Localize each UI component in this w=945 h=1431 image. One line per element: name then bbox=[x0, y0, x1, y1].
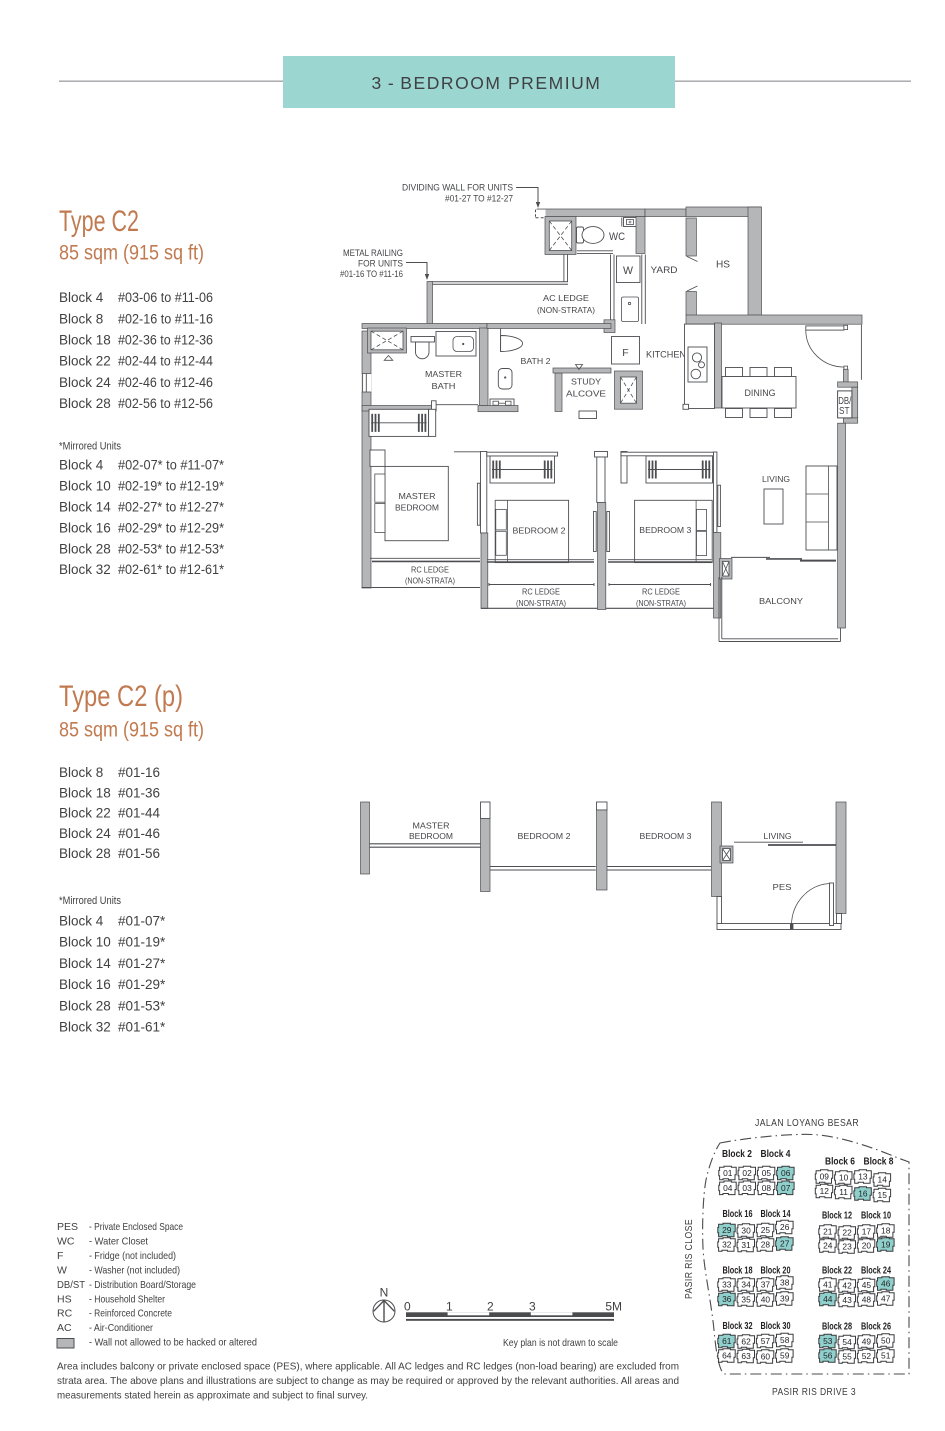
svg-text:BEDROOM: BEDROOM bbox=[409, 831, 453, 841]
svg-text:21: 21 bbox=[823, 1227, 833, 1237]
svg-text:12: 12 bbox=[820, 1186, 830, 1196]
svg-text:54: 54 bbox=[842, 1337, 852, 1347]
svg-text:40: 40 bbox=[761, 1295, 771, 1305]
svg-text:N: N bbox=[380, 1286, 389, 1300]
svg-text:Block 10: Block 10 bbox=[59, 935, 111, 950]
svg-text:BEDROOM 3: BEDROOM 3 bbox=[640, 831, 692, 841]
svg-text:- Fridge (not included): - Fridge (not included) bbox=[89, 1250, 176, 1262]
svg-text:Block 32: Block 32 bbox=[59, 562, 111, 577]
svg-text:Block 18: Block 18 bbox=[723, 1266, 753, 1277]
svg-text:Block 24: Block 24 bbox=[861, 1266, 891, 1277]
svg-text:59: 59 bbox=[780, 1351, 790, 1361]
svg-text:RC LEDGE: RC LEDGE bbox=[642, 588, 680, 597]
svg-text:03: 03 bbox=[742, 1183, 752, 1193]
svg-text:#01-36: #01-36 bbox=[118, 785, 160, 800]
svg-text:Block 10: Block 10 bbox=[861, 1211, 891, 1222]
svg-text:04: 04 bbox=[723, 1183, 733, 1193]
svg-text:Block 26: Block 26 bbox=[861, 1322, 891, 1333]
svg-text:15: 15 bbox=[878, 1190, 888, 1200]
svg-text:3 - BEDROOM PREMIUM: 3 - BEDROOM PREMIUM bbox=[372, 73, 602, 93]
svg-text:PES: PES bbox=[773, 882, 792, 892]
svg-text:11: 11 bbox=[839, 1187, 848, 1197]
svg-text:35: 35 bbox=[741, 1295, 751, 1305]
svg-text:#01-19*: #01-19* bbox=[118, 935, 166, 950]
svg-text:Block 18: Block 18 bbox=[59, 333, 111, 348]
svg-text:16: 16 bbox=[858, 1189, 868, 1199]
svg-text:64: 64 bbox=[722, 1351, 732, 1361]
svg-text:22: 22 bbox=[842, 1228, 852, 1238]
svg-text:BEDROOM 2: BEDROOM 2 bbox=[513, 526, 566, 536]
svg-text:27: 27 bbox=[780, 1239, 790, 1249]
svg-text:Block 14: Block 14 bbox=[59, 956, 111, 971]
svg-text:(NON-STRATA): (NON-STRATA) bbox=[516, 599, 566, 608]
svg-text:39: 39 bbox=[780, 1294, 790, 1304]
svg-text:48: 48 bbox=[862, 1295, 872, 1305]
svg-text:KITCHEN: KITCHEN bbox=[646, 350, 686, 360]
svg-text:#01-56: #01-56 bbox=[118, 846, 160, 861]
svg-text:43: 43 bbox=[842, 1295, 852, 1305]
svg-text:Block 22: Block 22 bbox=[59, 806, 111, 821]
svg-text:JALAN LOYANG BESAR: JALAN LOYANG BESAR bbox=[755, 1117, 859, 1129]
svg-text:Block 8: Block 8 bbox=[59, 311, 103, 326]
svg-text:Block 24: Block 24 bbox=[59, 826, 111, 841]
svg-text:47: 47 bbox=[881, 1294, 891, 1304]
svg-text:Key plan is not drawn to scale: Key plan is not drawn to scale bbox=[503, 1337, 618, 1349]
svg-text:Block 28: Block 28 bbox=[59, 541, 111, 556]
svg-text:09: 09 bbox=[820, 1172, 830, 1182]
svg-text:Block 18: Block 18 bbox=[59, 785, 111, 800]
svg-text:Block 4: Block 4 bbox=[59, 914, 104, 929]
svg-text:38: 38 bbox=[780, 1278, 790, 1288]
svg-text:DINING: DINING bbox=[745, 388, 776, 398]
svg-text:DB/ST: DB/ST bbox=[57, 1279, 86, 1291]
svg-text:0: 0 bbox=[404, 1299, 411, 1313]
svg-text:Block 6: Block 6 bbox=[825, 1157, 855, 1168]
svg-text:36: 36 bbox=[722, 1294, 732, 1304]
svg-text:51: 51 bbox=[881, 1351, 891, 1361]
svg-text:06: 06 bbox=[781, 1168, 791, 1178]
svg-text:33: 33 bbox=[722, 1280, 732, 1290]
svg-text:RC LEDGE: RC LEDGE bbox=[522, 588, 560, 597]
svg-text:Block 28: Block 28 bbox=[822, 1322, 852, 1333]
svg-text:#02-53* to #12-53*: #02-53* to #12-53* bbox=[118, 541, 225, 556]
svg-text:Type C2: Type C2 bbox=[59, 205, 139, 238]
svg-text:#02-16 to #11-16: #02-16 to #11-16 bbox=[118, 311, 213, 326]
svg-text:44: 44 bbox=[823, 1294, 833, 1304]
svg-text:28: 28 bbox=[761, 1240, 771, 1250]
svg-text:BATH: BATH bbox=[432, 381, 456, 391]
svg-text:F: F bbox=[57, 1250, 63, 1262]
svg-text:29: 29 bbox=[722, 1225, 732, 1235]
svg-text:*Mirrored Units: *Mirrored Units bbox=[59, 895, 121, 907]
svg-text:#01-07*: #01-07* bbox=[118, 914, 166, 929]
svg-text:57: 57 bbox=[761, 1336, 771, 1346]
svg-text:PASIR RIS DRIVE 3: PASIR RIS DRIVE 3 bbox=[772, 1386, 856, 1398]
svg-text:50: 50 bbox=[881, 1336, 891, 1346]
svg-text:FOR UNITS: FOR UNITS bbox=[358, 259, 403, 269]
svg-text:#02-46 to #12-46: #02-46 to #12-46 bbox=[118, 375, 213, 390]
svg-text:01: 01 bbox=[723, 1168, 733, 1178]
svg-text:Block 10: Block 10 bbox=[59, 479, 111, 494]
svg-text:26: 26 bbox=[780, 1222, 790, 1232]
svg-text:MASTER: MASTER bbox=[413, 821, 450, 831]
svg-text:- Private Enclosed Space: - Private Enclosed Space bbox=[89, 1221, 183, 1233]
svg-text:49: 49 bbox=[862, 1337, 872, 1347]
svg-text:Block 24: Block 24 bbox=[59, 375, 111, 390]
svg-text:- Distribution Board/Storage: - Distribution Board/Storage bbox=[89, 1279, 196, 1291]
svg-text:Block 12: Block 12 bbox=[822, 1211, 852, 1222]
svg-text:- Household Shelter: - Household Shelter bbox=[89, 1293, 165, 1305]
svg-text:Area includes balcony or priva: Area includes balcony or private enclose… bbox=[57, 1362, 679, 1373]
svg-text:W: W bbox=[57, 1264, 67, 1276]
svg-text:BEDROOM: BEDROOM bbox=[395, 503, 439, 513]
svg-text:BALCONY: BALCONY bbox=[759, 596, 803, 606]
svg-text:Block 16: Block 16 bbox=[59, 977, 111, 992]
svg-text:Block 16: Block 16 bbox=[59, 520, 111, 535]
svg-text:25: 25 bbox=[761, 1225, 771, 1235]
svg-text:AC: AC bbox=[57, 1322, 72, 1334]
svg-text:52: 52 bbox=[862, 1351, 872, 1361]
svg-text:WC: WC bbox=[609, 231, 625, 243]
svg-text:07: 07 bbox=[781, 1183, 791, 1193]
svg-text:#02-36 to #12-36: #02-36 to #12-36 bbox=[118, 333, 213, 348]
svg-text:17: 17 bbox=[862, 1227, 872, 1237]
svg-text:Block 2: Block 2 bbox=[722, 1149, 752, 1160]
svg-text:05: 05 bbox=[762, 1168, 772, 1178]
svg-text:58: 58 bbox=[780, 1335, 790, 1345]
svg-text:Block 14: Block 14 bbox=[59, 500, 111, 515]
svg-text:Block 4: Block 4 bbox=[59, 290, 104, 305]
svg-text:HS: HS bbox=[716, 260, 730, 271]
svg-text:RC LEDGE: RC LEDGE bbox=[411, 566, 449, 575]
svg-text:PES: PES bbox=[57, 1221, 78, 1233]
svg-text:#01-29*: #01-29* bbox=[118, 977, 166, 992]
svg-text:#02-19* to #12-19*: #02-19* to #12-19* bbox=[118, 479, 225, 494]
svg-text:Type C2 (p): Type C2 (p) bbox=[59, 680, 183, 713]
svg-text:63: 63 bbox=[741, 1351, 751, 1361]
svg-text:Block 4: Block 4 bbox=[59, 458, 104, 473]
svg-text:ST: ST bbox=[839, 406, 850, 417]
svg-text:#01-44: #01-44 bbox=[118, 806, 161, 821]
svg-text:37: 37 bbox=[761, 1280, 771, 1290]
svg-text:2: 2 bbox=[487, 1299, 494, 1313]
svg-text:- Air-Conditioner: - Air-Conditioner bbox=[89, 1322, 153, 1334]
svg-text:#02-29* to #12-29*: #02-29* to #12-29* bbox=[118, 520, 225, 535]
svg-text:Block 22: Block 22 bbox=[822, 1266, 852, 1277]
svg-text:85 sqm (915 sq ft): 85 sqm (915 sq ft) bbox=[59, 242, 204, 265]
svg-text:*Mirrored Units: *Mirrored Units bbox=[59, 441, 121, 453]
svg-text:#02-27* to #12-27*: #02-27* to #12-27* bbox=[118, 500, 225, 515]
svg-text:61: 61 bbox=[722, 1336, 732, 1346]
svg-text:- Water Closet: - Water Closet bbox=[89, 1235, 148, 1247]
svg-text:Block 8: Block 8 bbox=[59, 765, 103, 780]
svg-text:14: 14 bbox=[878, 1175, 888, 1185]
svg-text:LIVING: LIVING bbox=[764, 831, 792, 841]
svg-text:PASIR RIS CLOSE: PASIR RIS CLOSE bbox=[683, 1219, 695, 1299]
svg-text:Block 22: Block 22 bbox=[59, 354, 111, 369]
svg-text:Block 28: Block 28 bbox=[59, 396, 111, 411]
svg-text:41: 41 bbox=[823, 1280, 833, 1290]
svg-text:5M: 5M bbox=[605, 1299, 622, 1313]
svg-text:1: 1 bbox=[446, 1299, 453, 1313]
svg-text:Block 32: Block 32 bbox=[59, 1020, 111, 1035]
svg-text:Block 28: Block 28 bbox=[59, 998, 111, 1013]
svg-text:#01-16: #01-16 bbox=[118, 765, 160, 780]
svg-text:#01-46: #01-46 bbox=[118, 826, 160, 841]
svg-text:- Reinforced Concrete: - Reinforced Concrete bbox=[89, 1308, 172, 1320]
svg-text:F: F bbox=[622, 347, 628, 359]
svg-text:#01-16 TO #11-16: #01-16 TO #11-16 bbox=[340, 269, 403, 279]
svg-text:Block 20: Block 20 bbox=[761, 1266, 791, 1277]
svg-text:MASTER: MASTER bbox=[425, 369, 462, 379]
svg-text:Block 28: Block 28 bbox=[59, 846, 111, 861]
svg-text:#01-27*: #01-27* bbox=[118, 956, 166, 971]
svg-text:DIVIDING WALL FOR UNITS: DIVIDING WALL FOR UNITS bbox=[402, 183, 513, 193]
svg-text:Block 8: Block 8 bbox=[864, 1157, 894, 1168]
svg-text:(NON-STRATA): (NON-STRATA) bbox=[636, 599, 686, 608]
svg-text:#01-53*: #01-53* bbox=[118, 998, 166, 1013]
svg-text:24: 24 bbox=[823, 1241, 833, 1251]
svg-text:3: 3 bbox=[529, 1299, 536, 1313]
svg-text:02: 02 bbox=[742, 1168, 752, 1178]
svg-text:BEDROOM 2: BEDROOM 2 bbox=[518, 831, 571, 841]
svg-text:strata area. The above plans a: strata area. The above plans and illustr… bbox=[57, 1376, 679, 1387]
svg-text:BATH 2: BATH 2 bbox=[521, 356, 551, 366]
svg-text:Block 32: Block 32 bbox=[723, 1321, 753, 1332]
svg-text:measurements stated herein as: measurements stated herein as approximat… bbox=[57, 1391, 368, 1402]
svg-text:Block 30: Block 30 bbox=[761, 1321, 791, 1332]
svg-text:Block 16: Block 16 bbox=[723, 1209, 753, 1220]
svg-text:46: 46 bbox=[881, 1279, 891, 1289]
svg-text:56: 56 bbox=[823, 1351, 833, 1361]
svg-text:31: 31 bbox=[741, 1240, 751, 1250]
svg-text:53: 53 bbox=[823, 1336, 833, 1346]
svg-text:30: 30 bbox=[741, 1226, 751, 1236]
svg-text:60: 60 bbox=[761, 1352, 771, 1362]
svg-text:#02-56 to #12-56: #02-56 to #12-56 bbox=[118, 396, 213, 411]
svg-text:62: 62 bbox=[741, 1337, 751, 1347]
svg-text:13: 13 bbox=[858, 1172, 868, 1182]
svg-text:#02-07* to #11-07*: #02-07* to #11-07* bbox=[118, 458, 225, 473]
svg-text:ALCOVE: ALCOVE bbox=[566, 389, 606, 399]
svg-text:08: 08 bbox=[762, 1183, 772, 1193]
svg-text:MASTER: MASTER bbox=[399, 491, 436, 501]
svg-text:42: 42 bbox=[842, 1281, 852, 1291]
svg-text:(NON-STRATA): (NON-STRATA) bbox=[405, 577, 455, 586]
svg-text:23: 23 bbox=[842, 1242, 852, 1252]
svg-text:19: 19 bbox=[881, 1240, 891, 1250]
svg-text:W: W bbox=[623, 265, 634, 277]
svg-text:STUDY: STUDY bbox=[571, 377, 601, 387]
svg-text:#01-27 TO #12-27: #01-27 TO #12-27 bbox=[445, 194, 513, 204]
svg-text:- Wall not allowed to be hacke: - Wall not allowed to be hacked or alter… bbox=[89, 1337, 257, 1349]
svg-text:(NON-STRATA): (NON-STRATA) bbox=[537, 305, 595, 315]
svg-text:#02-44 to #12-44: #02-44 to #12-44 bbox=[118, 354, 213, 369]
svg-text:#03-06 to #11-06: #03-06 to #11-06 bbox=[118, 290, 213, 305]
svg-text:85 sqm (915 sq ft): 85 sqm (915 sq ft) bbox=[59, 718, 204, 741]
svg-text:10: 10 bbox=[839, 1173, 849, 1183]
svg-text:#01-61*: #01-61* bbox=[118, 1020, 166, 1035]
svg-text:55: 55 bbox=[842, 1352, 852, 1362]
svg-text:#02-61* to #12-61*: #02-61* to #12-61* bbox=[118, 562, 225, 577]
svg-text:18: 18 bbox=[881, 1226, 891, 1236]
svg-text:45: 45 bbox=[862, 1280, 872, 1290]
svg-text:WC: WC bbox=[57, 1235, 75, 1247]
svg-text:Block 4: Block 4 bbox=[761, 1149, 791, 1160]
svg-text:YARD: YARD bbox=[651, 265, 678, 276]
svg-text:AC LEDGE: AC LEDGE bbox=[543, 293, 589, 303]
svg-text:- Washer (not included): - Washer (not included) bbox=[89, 1264, 180, 1276]
svg-text:METAL RAILING: METAL RAILING bbox=[343, 248, 403, 258]
svg-text:20: 20 bbox=[862, 1241, 872, 1251]
svg-text:Block 14: Block 14 bbox=[761, 1209, 791, 1220]
svg-text:HS: HS bbox=[57, 1293, 72, 1305]
svg-text:34: 34 bbox=[741, 1280, 751, 1290]
svg-text:32: 32 bbox=[722, 1240, 732, 1250]
svg-text:LIVING: LIVING bbox=[762, 474, 790, 484]
svg-text:RC: RC bbox=[57, 1308, 73, 1320]
svg-text:BEDROOM 3: BEDROOM 3 bbox=[639, 525, 691, 535]
